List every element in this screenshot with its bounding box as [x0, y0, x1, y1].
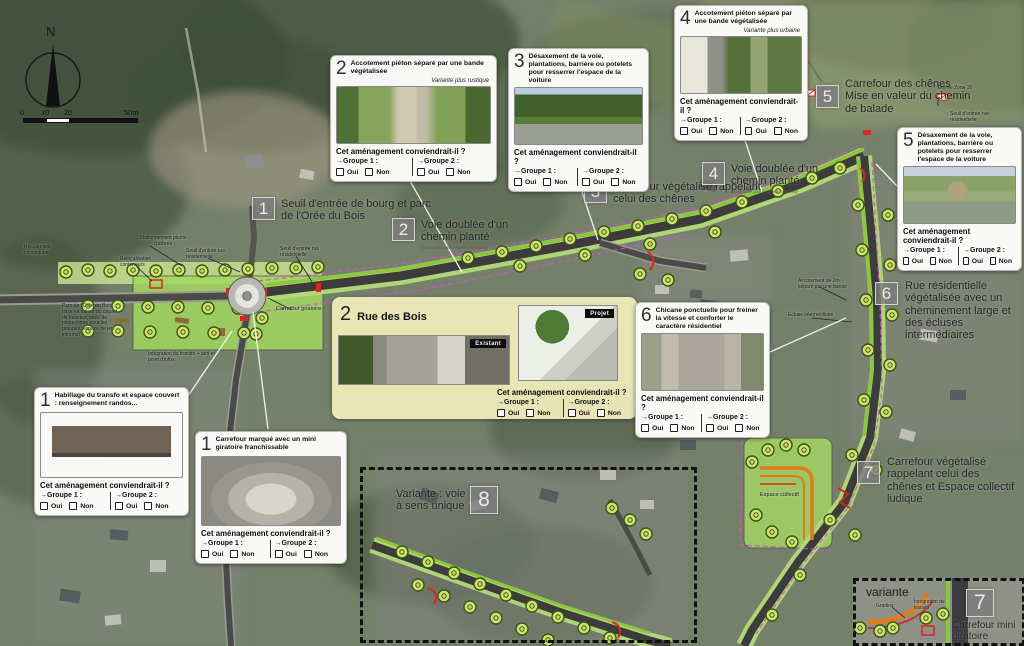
group-2: →Groupe 2 : OuiNon: [563, 399, 632, 417]
question-text: Cet aménagement conviendrait-il ?: [514, 148, 643, 166]
oui-label: Oui: [212, 551, 223, 558]
group-1: →Groupe 1 : OuiNon: [497, 399, 561, 417]
group-2: →Groupe 2 : OuiNon: [577, 168, 643, 186]
group2-label: →Groupe 2 :: [275, 540, 342, 547]
photo-existing-lane: Existant: [338, 335, 510, 385]
map-label-espace-collectif-7: Carrefour végétalisé rappelant celui des…: [887, 456, 1015, 505]
card-3-desaxement: 3 Désaxement de la voie, plantations, ba…: [508, 48, 649, 192]
checkbox-groupe2-non[interactable]: [735, 424, 743, 432]
map-label-variante-sens-unique: Variante : voie à sens unique: [396, 488, 472, 513]
checkbox-groupe2-non[interactable]: [611, 178, 619, 186]
map-badge-7: 7: [857, 461, 880, 484]
map-label-voie-doublee-4: Voie doublée d'un chemin planté: [731, 163, 841, 188]
checkbox-groupe1-oui[interactable]: [903, 257, 909, 265]
note-integration-transfo: Intégration du transfo + abri et point d…: [148, 352, 220, 364]
group1-label: →Groupe 1 :: [903, 247, 956, 254]
non-label: Non: [746, 425, 759, 432]
non-label: Non: [608, 410, 621, 417]
group1-label: →Groupe 1 :: [336, 158, 410, 165]
card-title: Chicane ponctuelle pour freiner la vites…: [656, 307, 764, 331]
scale-tick: 10: [41, 108, 49, 117]
note-seuil-rue-a: Seuil d'entrée rue résidentielle: [186, 249, 242, 261]
group-2: →Groupe 2 : OuiNon: [110, 492, 183, 510]
checkbox-groupe2-oui[interactable]: [417, 168, 425, 176]
group-1: →Groupe 1 : OuiNon: [680, 117, 738, 135]
oui-label: Oui: [652, 425, 663, 432]
map-label-mini-giratoire: Carrefour mini giratoire: [952, 620, 1022, 642]
note-reculement: Reculement conséquent: [24, 245, 66, 257]
feature-number: 2: [340, 303, 351, 326]
group-1: →Groupe 1 : OuiNon: [336, 158, 410, 176]
map-badge-5: 5: [816, 85, 839, 108]
group1-label: →Groupe 1 :: [497, 399, 561, 406]
non-label: Non: [554, 179, 567, 186]
oui-label: Oui: [508, 410, 519, 417]
project-badge: Projet: [585, 309, 614, 318]
group2-label: →Groupe 2 :: [706, 414, 764, 421]
card-6-chicane: 6 Chicane ponctuelle pour freiner la vit…: [635, 302, 770, 438]
non-label: Non: [939, 258, 952, 265]
note-espace-collectif: Espace collectif: [760, 492, 808, 498]
group-1: →Groupe 1 : OuiNon: [641, 414, 699, 432]
card-5-desaxement: 5 Désaxement de la voie, plantations, ba…: [897, 127, 1022, 271]
non-label: Non: [999, 258, 1012, 265]
note-ecluse: Écluse intermédiaire: [788, 313, 838, 319]
photo-green-roundabout: [903, 166, 1016, 224]
checkbox-groupe2-non[interactable]: [597, 409, 605, 417]
checkbox-groupe2-oui[interactable]: [745, 127, 753, 135]
photo-project-render: Projet: [518, 305, 618, 381]
oui-label: Oui: [593, 179, 604, 186]
checkbox-groupe1-non[interactable]: [670, 424, 678, 432]
checkbox-groupe2-oui[interactable]: [275, 550, 283, 558]
checkbox-groupe2-non[interactable]: [774, 127, 782, 135]
oui-label: Oui: [51, 503, 62, 510]
map-badge-6: 6: [875, 282, 898, 305]
urban-plan-map: N 0 10 20 50m 1 Seuil d'entrée de bourg …: [0, 0, 1024, 646]
oui-label: Oui: [912, 258, 923, 265]
checkbox-groupe1-non[interactable]: [230, 550, 238, 558]
card-title: Désaxement de la voie, plantations, barr…: [918, 132, 1016, 164]
question-text: Cet aménagement conviendrait-il ?: [641, 394, 764, 412]
variante-inset-title: variante: [866, 585, 909, 599]
checkbox-groupe1-non[interactable]: [365, 168, 373, 176]
checkbox-groupe1-oui[interactable]: [336, 168, 344, 176]
checkbox-groupe2-non[interactable]: [446, 168, 454, 176]
group2-label: →Groupe 2 :: [417, 158, 491, 165]
oui-label: Oui: [347, 169, 358, 176]
card-number: 3: [514, 53, 525, 71]
checkbox-groupe2-oui[interactable]: [115, 502, 123, 510]
group-1: →Groupe 1 : OuiNon: [903, 247, 956, 265]
card-2-accotement-rustique: 2 Accotement piéton séparé par une bande…: [330, 55, 497, 182]
group-2: →Groupe 2 : OuiNon: [701, 414, 764, 432]
group1-label: →Groupe 1 :: [40, 492, 108, 499]
checkbox-groupe1-oui[interactable]: [514, 178, 522, 186]
scale-tick: 20: [64, 108, 72, 117]
note-stationnement: Stationnement planté d'arbres: [138, 236, 188, 248]
group-2: →Groupe 2 : OuiNon: [412, 158, 491, 176]
group1-label: →Groupe 1 :: [201, 540, 268, 547]
oui-label: Oui: [126, 503, 137, 510]
checkbox-groupe2-oui[interactable]: [568, 409, 576, 417]
photo-residential-street: [641, 333, 764, 391]
map-sublabel-emprise-4: (nécessite une emprise foncière): [731, 189, 841, 194]
question-text: Cet aménagement conviendrait-il ?: [903, 227, 1016, 245]
checkbox-groupe2-oui[interactable]: [963, 257, 969, 265]
feature-card-rue-des-bois: 2 Rue des Bois Existant Projet Cet aména…: [332, 297, 637, 419]
checkbox-groupe2-oui[interactable]: [706, 424, 714, 432]
non-label: Non: [155, 503, 168, 510]
group-2: →Groupe 2 : OuiNon: [270, 540, 342, 558]
map-label-rue-residentielle: Rue résidentielle végétalisée avec un ch…: [905, 280, 1023, 342]
oui-label: Oui: [579, 410, 590, 417]
card-title: Habillage du transfo et espace couvert :…: [55, 392, 183, 408]
card-title: Accotement piéton séparé par une bande v…: [695, 10, 802, 26]
question-text: Cet aménagement conviendrait-il ?: [497, 388, 631, 397]
non-label: Non: [681, 425, 694, 432]
group2-label: →Groupe 2 :: [963, 247, 1016, 254]
card-4-accotement-urbain: 4 Accotement piéton séparé par une bande…: [674, 5, 808, 141]
map-label-seuil-entree: Seuil d'entrée de bourg et parc de l'Oré…: [281, 198, 443, 223]
card-number: 5: [903, 132, 914, 150]
non-label: Non: [537, 410, 550, 417]
checkbox-groupe1-non[interactable]: [709, 127, 717, 135]
checkbox-groupe2-oui[interactable]: [582, 178, 590, 186]
compass: N: [18, 22, 88, 122]
card-1-mini-giratoire: 1 Carrefour marqué avec un mini giratoir…: [195, 431, 347, 564]
photo-green-lane: [336, 86, 491, 144]
map-badge-7b: 7: [966, 589, 994, 617]
group1-label: →Groupe 1 :: [680, 117, 738, 124]
checkbox-groupe1-oui[interactable]: [497, 409, 505, 417]
map-badge-2: 2: [392, 218, 415, 241]
card-1-habillage-transfo: 1 Habillage du transfo et espace couvert…: [34, 387, 189, 516]
photo-wood-shelter: [40, 412, 183, 478]
existing-badge: Existant: [470, 339, 506, 348]
non-label: Non: [457, 169, 470, 176]
card-number: 4: [680, 10, 691, 28]
oui-label: Oui: [286, 551, 297, 558]
non-label: Non: [241, 551, 254, 558]
checkbox-groupe1-non[interactable]: [69, 502, 77, 510]
group2-label: →Groupe 2 :: [745, 117, 803, 124]
scale-bar: 0 10 20 50m: [14, 108, 154, 123]
note-integration-transfo-2: Intégration du transfo: [914, 600, 956, 612]
checkbox-groupe1-non[interactable]: [930, 257, 936, 265]
photo-urban-street: [680, 36, 802, 94]
note-relocalisation: Relocalisation conteneurs: [120, 257, 162, 269]
note-gradins: Gradins: [876, 604, 906, 610]
map-sublabel-emprise-2: (nécessite une emprise foncière): [421, 245, 521, 250]
feature-title: Rue des Bois: [357, 311, 427, 323]
card-number: 1: [40, 392, 51, 410]
roundabout: [228, 277, 266, 315]
oui-label: Oui: [972, 258, 983, 265]
oui-label: Oui: [717, 425, 728, 432]
non-label: Non: [622, 179, 635, 186]
oui-label: Oui: [525, 179, 536, 186]
group1-label: →Groupe 1 :: [641, 414, 699, 421]
note-carrefour-giratoire: Carrefour giratoire: [276, 306, 324, 312]
photo-trees-road: [514, 87, 643, 145]
map-label-voie-doublee-2: Voie doublée d'un chemin planté: [421, 219, 521, 244]
oui-label: Oui: [428, 169, 439, 176]
question-text: Cet aménagement conviendrait-il ?: [336, 147, 491, 156]
card-title: Carrefour marqué avec un mini giratoire …: [216, 436, 341, 452]
group-2: →Groupe 2 : OuiNon: [740, 117, 803, 135]
card-title: Désaxement de la voie, plantations, barr…: [529, 53, 643, 85]
group-1: →Groupe 1 : OuiNon: [514, 168, 575, 186]
checkbox-groupe1-oui[interactable]: [641, 424, 649, 432]
checkbox-groupe1-oui[interactable]: [40, 502, 48, 510]
map-badge-4: 4: [702, 162, 725, 185]
checkbox-groupe2-non[interactable]: [304, 550, 312, 558]
non-label: Non: [80, 503, 93, 510]
card-number: 6: [641, 307, 652, 325]
photo-mini-roundabout: [201, 456, 341, 526]
note-seuil-rue-b: Seuil d'entrée rue résidentielle: [280, 247, 332, 259]
non-label: Non: [785, 128, 798, 135]
checkbox-groupe2-non[interactable]: [990, 257, 996, 265]
checkbox-groupe1-oui[interactable]: [201, 550, 209, 558]
question-text: Cet aménagement conviendrait-il ?: [40, 481, 183, 490]
note-accotement-2m: Accotement de 2m séparé par une bande: [798, 279, 854, 291]
group-2: →Groupe 2 : OuiNon: [958, 247, 1016, 265]
oui-label: Oui: [691, 128, 702, 135]
non-label: Non: [315, 551, 328, 558]
map-badge-1: 1: [252, 197, 275, 220]
group1-label: →Groupe 1 :: [514, 168, 575, 175]
group-1: →Groupe 1 : OuiNon: [40, 492, 108, 510]
map-label-carrefour-chenes: Carrefour des chênes Mise en valeur du c…: [845, 78, 973, 115]
scale-tick: 50m: [124, 108, 139, 117]
group2-label: →Groupe 2 :: [115, 492, 183, 499]
group-1: →Groupe 1 : OuiNon: [201, 540, 268, 558]
card-variant: Variante plus urbaine: [680, 28, 800, 34]
checkbox-groupe2-non[interactable]: [144, 502, 152, 510]
card-title: Accotement piéton séparé par une bande v…: [351, 60, 491, 76]
compass-north-label: N: [46, 24, 55, 39]
checkbox-groupe1-non[interactable]: [543, 178, 551, 186]
group2-label: →Groupe 2 :: [568, 399, 632, 406]
card-number: 1: [201, 436, 212, 454]
group2-label: →Groupe 2 :: [582, 168, 643, 175]
scale-tick: 0: [20, 108, 24, 117]
checkbox-groupe1-non[interactable]: [526, 409, 534, 417]
card-variant: Variante plus rustique: [336, 78, 489, 84]
checkbox-groupe1-oui[interactable]: [680, 127, 688, 135]
note-parc-oree-du-bois: Parc de l'Orée du Bois mise en valeur du…: [62, 304, 120, 339]
question-text: Cet aménagement conviendrait-il ?: [680, 97, 802, 115]
card-number: 2: [336, 60, 347, 78]
question-text: Cet aménagement conviendrait-il ?: [201, 529, 341, 538]
map-badge-8: 8: [470, 486, 498, 514]
non-label: Non: [720, 128, 733, 135]
feature-question-block: Cet aménagement conviendrait-il ? →Group…: [497, 387, 631, 417]
non-label: Non: [376, 169, 389, 176]
oui-label: Oui: [755, 128, 766, 135]
